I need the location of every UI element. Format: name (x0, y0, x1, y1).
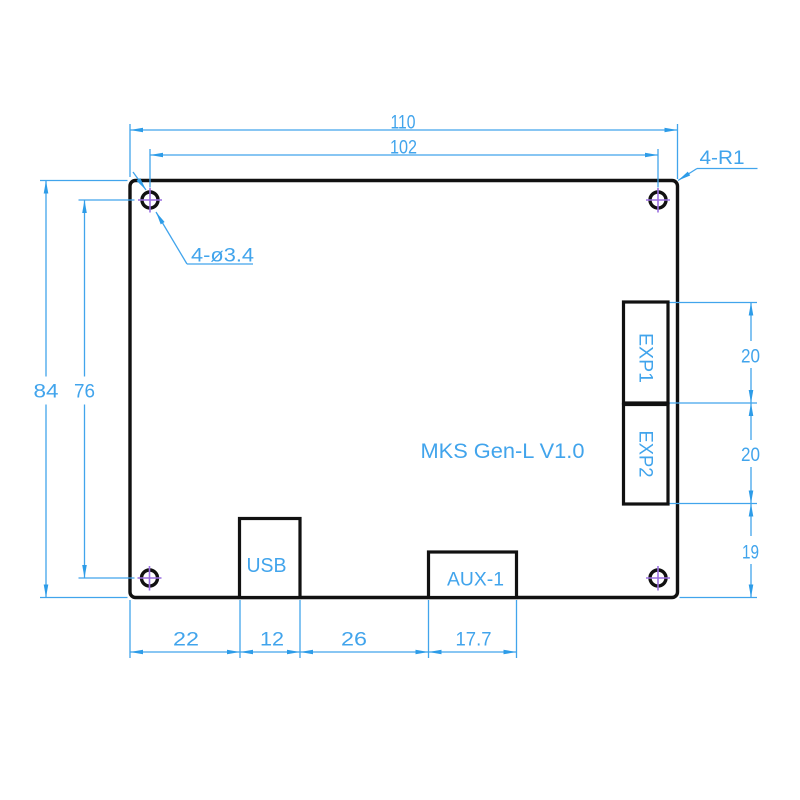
svg-text:MKS Gen-L V1.0: MKS Gen-L V1.0 (421, 440, 585, 463)
svg-text:17.7: 17.7 (456, 630, 492, 651)
svg-text:20: 20 (741, 347, 760, 368)
svg-text:19: 19 (742, 543, 759, 564)
svg-text:26: 26 (341, 630, 367, 651)
svg-text:USB: USB (247, 555, 287, 577)
svg-text:EXP2: EXP2 (635, 431, 656, 478)
svg-text:EXP1: EXP1 (635, 333, 656, 383)
svg-text:110: 110 (391, 113, 416, 134)
svg-text:4-R1: 4-R1 (700, 148, 745, 169)
svg-text:76: 76 (74, 382, 95, 403)
svg-text:22: 22 (173, 630, 199, 651)
svg-text:12: 12 (260, 630, 284, 651)
svg-text:102: 102 (390, 138, 417, 159)
svg-text:84: 84 (34, 382, 60, 403)
svg-text:4-ø3.4: 4-ø3.4 (191, 246, 254, 267)
svg-text:AUX-1: AUX-1 (447, 570, 504, 591)
svg-text:20: 20 (741, 445, 760, 466)
